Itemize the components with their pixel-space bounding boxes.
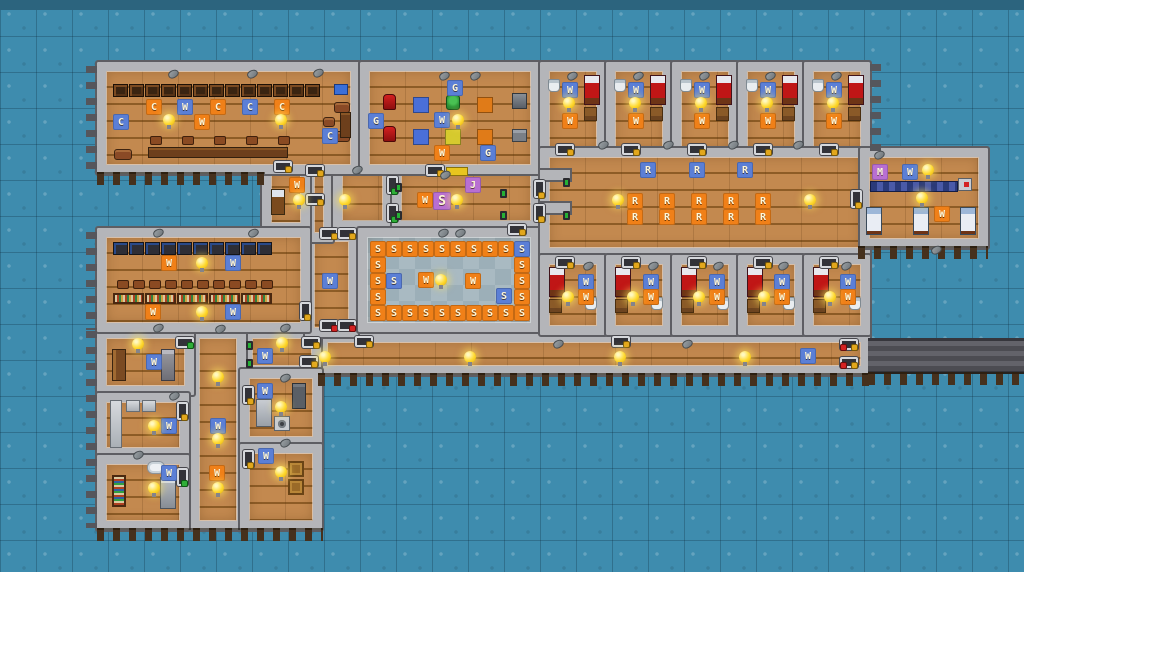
marker-tile-w[interactable]: W [562,113,578,129]
marker-tile-s[interactable]: S [498,241,514,257]
ceiling-light[interactable] [275,401,287,413]
ceiling-light[interactable] [761,97,773,109]
ceiling-light[interactable] [275,466,287,478]
ceiling-light[interactable] [758,291,770,303]
marker-tile-w[interactable]: W [694,113,710,129]
computer-desk[interactable] [145,242,160,255]
marker-tile-w[interactable]: W [902,164,918,180]
marker-tile-s[interactable]: S [402,241,418,257]
serving-table[interactable] [209,84,224,97]
stool[interactable] [278,136,290,145]
marker-tile-w[interactable]: W [161,418,177,434]
dock-posts [868,372,1024,385]
stool[interactable] [165,280,177,289]
toilet[interactable] [680,79,692,92]
serving-table[interactable] [305,84,320,97]
marker-tile-s[interactable]: S [418,241,434,257]
ceiling-light[interactable] [612,194,624,206]
marker-tile-c[interactable]: C [146,99,162,115]
marker-tile-c[interactable]: C [242,99,258,115]
punching-bag[interactable] [383,126,396,142]
drawer-chest[interactable] [650,107,663,121]
serving-table[interactable] [273,84,288,97]
exercise-mat[interactable] [413,97,429,113]
marker-tile-w[interactable]: W [258,448,274,464]
marker-tile-r[interactable]: R [659,193,675,209]
long-table[interactable] [340,112,351,138]
marker-tile-c[interactable]: C [274,99,290,115]
marker-tile-s[interactable]: S [418,305,434,321]
marker-tile-w[interactable]: W [289,177,305,193]
marker-tile-w[interactable]: W [225,255,241,271]
door[interactable] [177,468,188,486]
weight-machine[interactable] [512,93,527,109]
drawer-chest[interactable] [848,107,861,121]
game-viewport[interactable]: CWCCCCWCGGWWGWWWWWWWWWWRRRRRRRRRRRRRMWWW… [0,0,1024,572]
door[interactable] [556,144,574,155]
marker-tile-w[interactable]: W [146,354,162,370]
stool[interactable] [149,280,161,289]
bookshelf[interactable] [177,293,208,304]
marker-tile-m[interactable]: M [872,164,888,180]
stool[interactable] [181,280,193,289]
serving-table[interactable] [113,84,128,97]
coat-rack[interactable] [112,349,126,381]
computer-desk[interactable] [193,242,208,255]
marker-tile-s[interactable]: S [370,305,386,321]
crate[interactable] [288,461,304,477]
stool[interactable] [197,280,209,289]
marker-tile-r[interactable]: R [689,162,705,178]
ceiling-light[interactable] [212,482,224,494]
marker-tile-s[interactable]: S [514,241,530,257]
marker-tile-s[interactable]: S [514,289,530,305]
door[interactable] [612,336,630,347]
dock-posts [86,331,97,528]
door[interactable] [622,257,640,268]
toilet[interactable] [746,79,758,92]
serving-table[interactable] [257,84,272,97]
marker-tile-r[interactable]: R [627,193,643,209]
stool[interactable] [150,136,162,145]
serving-table[interactable] [161,84,176,97]
door-servo-light [246,341,253,350]
marker-tile-s[interactable]: S [466,305,482,321]
marker-tile-w[interactable]: W [194,114,210,130]
door[interactable] [840,357,858,368]
ceiling-light[interactable] [163,114,175,126]
marker-tile-w[interactable]: W [322,273,338,289]
ceiling-light[interactable] [452,114,464,126]
marker-tile-w[interactable]: W [578,289,594,305]
exercise-mat[interactable] [477,97,493,113]
marker-tile-c[interactable]: C [322,128,338,144]
marker-tile-w[interactable]: W [840,289,856,305]
marker-tile-r[interactable]: R [755,193,771,209]
marker-tile-w[interactable]: W [418,272,434,288]
door-servo-light [246,359,253,368]
marker-tile-s[interactable]: S [434,241,450,257]
marker-tile-s[interactable]: S [386,241,402,257]
locker[interactable] [161,349,175,381]
steel-counter[interactable] [142,400,156,412]
ceiling-light[interactable] [695,97,707,109]
door[interactable] [338,320,356,331]
marker-tile-w[interactable]: W [257,348,273,364]
stool[interactable] [214,136,226,145]
marker-tile-w[interactable]: W [760,82,776,98]
marker-tile-s[interactable]: S [434,305,450,321]
marker-tile-s[interactable]: S [370,241,386,257]
door[interactable] [820,257,838,268]
marker-tile-w[interactable]: W [826,82,842,98]
dock-posts [86,66,97,174]
medical-bed[interactable] [913,207,929,235]
marker-tile-w[interactable]: W [161,465,177,481]
stool[interactable] [246,136,258,145]
ceiling-light[interactable] [148,482,160,494]
ceiling-light[interactable] [916,192,928,204]
marker-tile-w[interactable]: W [578,274,594,290]
marker-tile-s[interactable]: S [433,192,451,210]
drawer-chest[interactable] [747,299,760,313]
marker-tile-r[interactable]: R [659,209,675,225]
marker-tile-w[interactable]: W [177,99,193,115]
ceiling-light[interactable] [276,337,288,349]
marker-tile-s[interactable]: S [482,305,498,321]
marker-tile-w[interactable]: W [840,274,856,290]
drawer-chest[interactable] [549,299,562,313]
ceiling-light[interactable] [212,433,224,445]
door[interactable] [306,165,324,176]
marker-tile-w[interactable]: W [210,418,226,434]
marker-tile-s[interactable]: S [514,273,530,289]
ceiling-light[interactable] [804,194,816,206]
marker-tile-w[interactable]: W [161,255,177,271]
ceiling-light[interactable] [562,291,574,303]
door[interactable] [300,302,311,320]
drawer-chest[interactable] [681,299,694,313]
ceiling-light[interactable] [614,351,626,363]
ceiling-light[interactable] [196,257,208,269]
ceiling-light[interactable] [922,164,934,176]
ceiling-light[interactable] [693,291,705,303]
stool[interactable] [182,136,194,145]
ceiling-light[interactable] [824,291,836,303]
ceiling-light[interactable] [451,194,463,206]
marker-tile-s[interactable]: S [514,257,530,273]
marker-tile-s[interactable]: S [386,273,402,289]
computer-desk[interactable] [257,242,272,255]
serving-table[interactable] [193,84,208,97]
marker-tile-s[interactable]: S [386,305,402,321]
marker-tile-s[interactable]: S [370,289,386,305]
stool[interactable] [213,280,225,289]
door-servo-light [395,211,402,220]
marker-tile-c[interactable]: C [210,99,226,115]
room-main-corridor [318,333,870,375]
ceiling-light[interactable] [293,194,305,206]
marker-tile-w[interactable]: W [434,145,450,161]
ceiling-light[interactable] [629,97,641,109]
ceiling-light[interactable] [196,306,208,318]
marker-tile-w[interactable]: W [628,82,644,98]
marker-tile-s[interactable]: S [482,241,498,257]
drawer-chest[interactable] [782,107,795,121]
marker-tile-r[interactable]: R [691,209,707,225]
door[interactable] [338,228,356,239]
serving-table[interactable] [145,84,160,97]
computer-desk[interactable] [177,242,192,255]
marker-tile-s[interactable]: S [370,257,386,273]
long-table[interactable] [148,147,288,158]
marker-tile-w[interactable]: W [434,112,450,128]
medical-bed[interactable] [866,207,882,235]
dock-posts [86,232,97,330]
ceiling-light[interactable] [132,338,144,350]
sofa[interactable] [323,117,335,127]
bed[interactable] [584,75,600,105]
computer-desk[interactable] [241,242,256,255]
bookshelf[interactable] [241,293,272,304]
door[interactable] [688,144,706,155]
medical-bed[interactable] [960,207,976,235]
stool[interactable] [117,280,129,289]
marker-tile-w[interactable]: W [800,348,816,364]
dock-road [868,338,1024,374]
marker-tile-w[interactable]: W [628,113,644,129]
door[interactable] [176,337,194,348]
door[interactable] [320,228,338,239]
marker-tile-w[interactable]: W [709,274,725,290]
serving-table[interactable] [129,84,144,97]
marker-tile-r[interactable]: R [755,209,771,225]
marker-tile-w[interactable]: W [465,273,481,289]
steel-counter[interactable] [126,400,140,412]
marker-tile-w[interactable]: W [774,274,790,290]
dock-posts [318,373,870,386]
bed[interactable] [716,75,732,105]
door-servo-light [563,178,570,187]
door[interactable] [302,337,320,348]
exercise-mat[interactable] [445,129,461,145]
exercise-mat[interactable] [477,129,493,145]
computer-desk[interactable] [161,242,176,255]
dock-posts [870,64,881,154]
door[interactable] [534,180,545,198]
marker-tile-r[interactable]: R [640,162,656,178]
toilet[interactable] [812,79,824,92]
drawer-chest[interactable] [584,107,597,121]
door[interactable] [688,257,706,268]
workout-bench[interactable] [512,129,527,142]
serving-counter[interactable] [870,181,958,192]
door[interactable] [840,339,858,350]
dock-posts [858,246,988,259]
dock-posts [97,172,265,185]
serving-tray[interactable] [334,84,348,95]
marker-tile-s[interactable]: S [466,241,482,257]
marker-tile-s[interactable]: S [498,305,514,321]
marker-tile-s[interactable]: S [514,305,530,321]
bookshelf[interactable] [113,293,144,304]
punching-bag[interactable] [383,94,396,110]
ceiling-light[interactable] [627,291,639,303]
serving-table[interactable] [177,84,192,97]
marker-tile-w[interactable]: W [643,274,659,290]
drawer-chest[interactable] [716,107,729,121]
marker-tile-s[interactable]: S [402,305,418,321]
marker-tile-w[interactable]: W [145,304,161,320]
marker-tile-w[interactable]: W [774,289,790,305]
toilet[interactable] [548,79,560,92]
marker-tile-w[interactable]: W [562,82,578,98]
plant[interactable] [446,95,460,110]
serving-table[interactable] [241,84,256,97]
door[interactable] [274,161,292,172]
computer-desk[interactable] [209,242,224,255]
marker-tile-w[interactable]: W [209,465,225,481]
door[interactable] [243,386,254,404]
marker-tile-r[interactable]: R [737,162,753,178]
door-servo-light [500,189,507,198]
stove[interactable] [274,416,290,431]
marker-tile-w[interactable]: W [225,304,241,320]
stool[interactable] [133,280,145,289]
ceiling-light[interactable] [319,351,331,363]
bookshelf-tall[interactable] [112,475,126,507]
marker-tile-w[interactable]: W [826,113,842,129]
marker-tile-w[interactable]: W [643,289,659,305]
door[interactable] [508,224,526,235]
door[interactable] [300,356,318,367]
marker-tile-r[interactable]: R [627,209,643,225]
marker-tile-w[interactable]: W [709,289,725,305]
door[interactable] [320,320,338,331]
door[interactable] [754,257,772,268]
ceiling-light[interactable] [739,351,751,363]
door-servo-light [395,183,402,192]
stool[interactable] [229,280,241,289]
ceiling-light[interactable] [563,97,575,109]
drawer-chest[interactable] [813,299,826,313]
shower-unit[interactable] [160,477,176,509]
door[interactable] [177,402,188,420]
fridge[interactable] [292,383,306,409]
serving-table[interactable] [225,84,240,97]
holding-bed[interactable] [271,189,285,215]
ceiling-light[interactable] [464,351,476,363]
marker-tile-w[interactable]: W [760,113,776,129]
exercise-mat[interactable] [413,129,429,145]
marker-tile-w[interactable]: W [934,206,950,222]
room-gym [360,62,540,174]
marker-tile-r[interactable]: R [723,193,739,209]
door-servo-light [563,211,570,220]
ceiling-light[interactable] [435,274,447,286]
ceiling-light[interactable] [148,420,160,432]
serving-table[interactable] [289,84,304,97]
door[interactable] [851,190,862,208]
marker-tile-s[interactable]: S [370,273,386,289]
marker-tile-w[interactable]: W [257,383,273,399]
marker-tile-w[interactable]: W [694,82,710,98]
door[interactable] [820,144,838,155]
prison-map: CWCCCCWCGGWWGWWWWWWWWWWRRRRRRRRRRRRRMWWW… [0,0,1024,572]
door[interactable] [622,144,640,155]
marker-tile-r[interactable]: R [723,209,739,225]
door[interactable] [754,144,772,155]
marker-tile-j[interactable]: J [465,177,481,193]
door[interactable] [534,204,545,222]
ceiling-light[interactable] [339,194,351,206]
door[interactable] [355,336,373,347]
marker-tile-w[interactable]: W [417,192,433,208]
steel-counter[interactable] [110,400,122,448]
bed[interactable] [650,75,666,105]
ceiling-light[interactable] [212,371,224,383]
medical-box[interactable] [958,178,972,191]
stool[interactable] [261,280,273,289]
bookshelf[interactable] [145,293,176,304]
door[interactable] [556,257,574,268]
fridge-steel[interactable] [256,399,272,427]
bed[interactable] [848,75,864,105]
dock-posts [97,528,323,541]
sofa[interactable] [114,149,132,160]
marker-tile-s[interactable]: S [496,288,512,304]
drawer-chest[interactable] [615,299,628,313]
marker-tile-r[interactable]: R [691,193,707,209]
door[interactable] [306,194,324,205]
door[interactable] [243,450,254,468]
marker-tile-g[interactable]: G [368,113,384,129]
ceiling-light[interactable] [827,97,839,109]
marker-tile-s[interactable]: S [450,241,466,257]
door-servo-light [500,211,507,220]
computer-desk[interactable] [129,242,144,255]
computer-desk[interactable] [113,242,128,255]
bookshelf[interactable] [209,293,240,304]
ceiling-light[interactable] [275,114,287,126]
marker-tile-s[interactable]: S [450,305,466,321]
bed[interactable] [782,75,798,105]
marker-tile-g[interactable]: G [447,80,463,96]
stool[interactable] [245,280,257,289]
crate[interactable] [288,479,304,495]
toilet[interactable] [614,79,626,92]
marker-tile-c[interactable]: C [113,114,129,130]
computer-desk[interactable] [225,242,240,255]
marker-tile-g[interactable]: G [480,145,496,161]
